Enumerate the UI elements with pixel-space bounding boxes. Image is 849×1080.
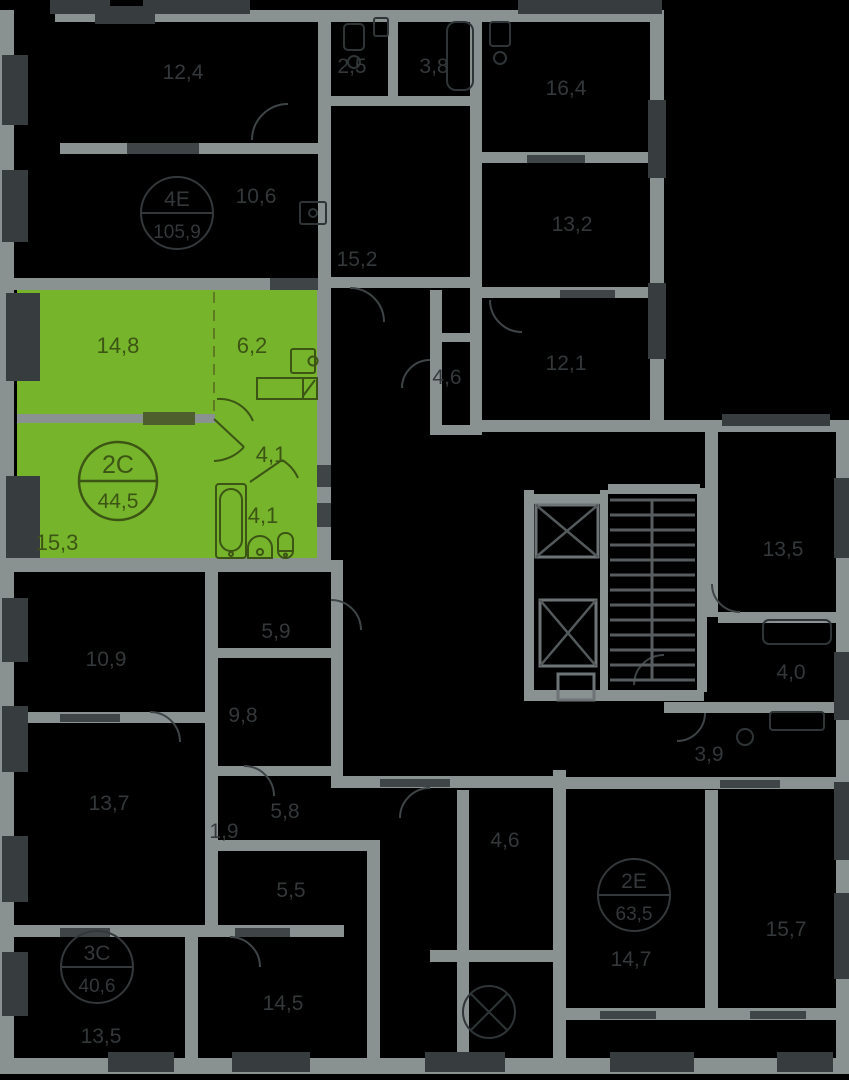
- door-opening: [527, 155, 585, 163]
- floor-plan: 14,8 6,2 4,1 4,1 15,3 2С 44,5 12,4 10,6 …: [0, 0, 849, 1080]
- wall: [705, 790, 718, 1012]
- window-icon: [95, 6, 155, 24]
- door-opening: [380, 779, 450, 787]
- wall: [205, 572, 218, 932]
- dim-room-area-label: 4,0: [776, 661, 805, 684]
- dim-room-area-label: 15,7: [766, 918, 807, 941]
- room-area-label: 6,2: [237, 333, 268, 358]
- room-area-label: 4,1: [248, 503, 279, 528]
- unit-area-label: 105,9: [153, 222, 201, 243]
- unit-badge: 3С 40,6: [61, 931, 133, 1003]
- window-icon: [425, 1052, 505, 1072]
- window-icon: [834, 652, 849, 720]
- wall: [524, 690, 704, 701]
- wall: [553, 770, 566, 1072]
- wall: [218, 648, 343, 658]
- wall: [608, 484, 700, 494]
- unit-area-label: 44,5: [98, 490, 139, 513]
- wall: [217, 840, 380, 851]
- window-icon: [777, 1052, 833, 1072]
- unit-badge: 2Е 63,5: [598, 859, 670, 931]
- window-icon: [232, 1052, 310, 1072]
- room-area-label: 15,3: [36, 530, 79, 555]
- dim-room-area-label: 13,5: [763, 538, 804, 561]
- wall: [218, 766, 343, 776]
- dim-room-area-label: 1,9: [209, 820, 238, 843]
- dim-room-area-label: 13,5: [81, 1025, 122, 1048]
- wall: [650, 10, 664, 432]
- selected-unit-badge: 2С 44,5: [79, 442, 157, 520]
- wall: [524, 490, 534, 700]
- dim-room-area-label: 15,2: [337, 248, 378, 271]
- dim-room-area-label: 2,5: [337, 55, 366, 78]
- wall: [566, 777, 849, 789]
- window-icon: [2, 706, 28, 772]
- window-icon: [518, 0, 662, 14]
- dim-room-area-label: 12,1: [546, 352, 587, 375]
- dim-room-area-label: 13,2: [552, 213, 593, 236]
- window-icon: [648, 100, 666, 178]
- window-icon: [834, 893, 849, 979]
- dim-room-area-label: 16,4: [546, 77, 587, 100]
- wall: [318, 10, 331, 290]
- door-opening: [235, 928, 290, 937]
- door-opening: [600, 1011, 656, 1019]
- wall: [430, 950, 553, 962]
- door-opening: [317, 465, 331, 487]
- dim-room-area-label: 3,8: [419, 55, 448, 78]
- wall: [388, 12, 398, 98]
- unit-area-label: 40,6: [79, 976, 116, 997]
- wall: [331, 277, 478, 288]
- unit-badge: 4Е 105,9: [141, 177, 213, 249]
- door-opening: [720, 780, 780, 788]
- unit-type-label: 4Е: [164, 188, 190, 211]
- wall: [430, 290, 442, 435]
- window-icon: [108, 1052, 174, 1072]
- dim-room-area-label: 5,5: [276, 879, 305, 902]
- partition-opening: [143, 412, 195, 425]
- dim-room-area-label: 9,8: [228, 704, 257, 727]
- wall: [600, 490, 608, 690]
- wall: [14, 558, 331, 572]
- door-opening: [127, 143, 199, 154]
- unit-type-label: 3С: [84, 942, 111, 965]
- room-area-label: 4,1: [256, 442, 287, 467]
- window-icon: [610, 1052, 694, 1072]
- dim-room-area-label: 5,9: [261, 620, 290, 643]
- wall: [331, 96, 479, 106]
- wall: [331, 560, 343, 778]
- window-icon: [834, 782, 849, 860]
- dim-room-area-label: 12,4: [163, 61, 204, 84]
- unit-area-label: 63,5: [616, 904, 653, 925]
- door-opening: [317, 503, 331, 527]
- window-icon: [722, 414, 830, 426]
- dim-room-area-label: 14,5: [263, 992, 304, 1015]
- unit-type-label: 2Е: [621, 870, 647, 893]
- dim-room-area-label: 10,9: [86, 648, 127, 671]
- dim-room-area-label: 13,7: [89, 792, 130, 815]
- door-opening: [750, 1011, 806, 1019]
- window-icon: [6, 293, 40, 381]
- window-icon: [2, 952, 28, 1016]
- door-opening: [270, 278, 318, 290]
- window-icon: [2, 598, 28, 662]
- window-icon: [834, 478, 849, 558]
- door-opening: [560, 290, 615, 298]
- dim-room-area-label: 4,6: [490, 829, 519, 852]
- window-icon: [2, 170, 28, 242]
- dim-room-area-label: 3,9: [694, 743, 723, 766]
- window-icon: [143, 0, 250, 14]
- window-icon: [2, 55, 28, 125]
- unit-type-label: 2С: [102, 451, 134, 479]
- door-opening: [60, 714, 120, 722]
- wall: [470, 287, 482, 432]
- window-icon: [648, 283, 666, 359]
- dim-room-area-label: 4,6: [432, 366, 461, 389]
- wall: [185, 937, 198, 1060]
- wall: [524, 494, 608, 504]
- dim-room-area-label: 14,7: [611, 948, 652, 971]
- window-icon: [2, 836, 28, 902]
- dim-room-area-label: 5,8: [270, 800, 299, 823]
- room-area-label: 14,8: [97, 333, 140, 358]
- dim-room-area-label: 10,6: [236, 185, 277, 208]
- wall: [367, 840, 380, 1058]
